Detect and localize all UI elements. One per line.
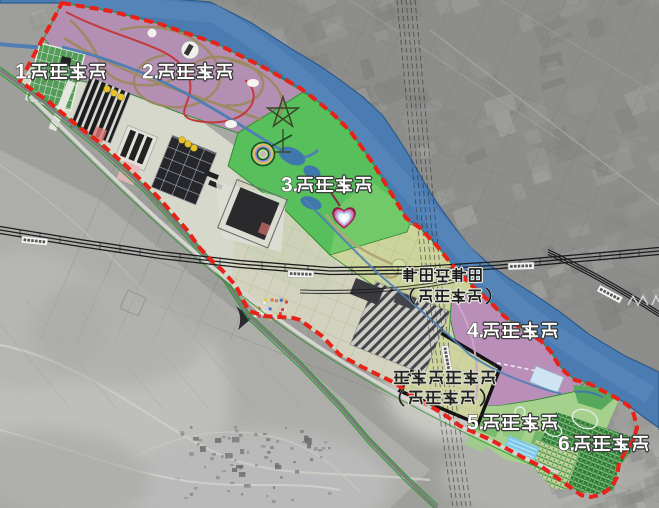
svg-text:2.: 2. <box>142 61 160 84</box>
svg-text:6.: 6. <box>558 433 576 456</box>
svg-text:1.: 1. <box>15 61 33 84</box>
svg-text:3.: 3. <box>281 174 299 197</box>
svg-text:4.: 4. <box>467 320 485 343</box>
svg-text:5.: 5. <box>467 412 485 435</box>
